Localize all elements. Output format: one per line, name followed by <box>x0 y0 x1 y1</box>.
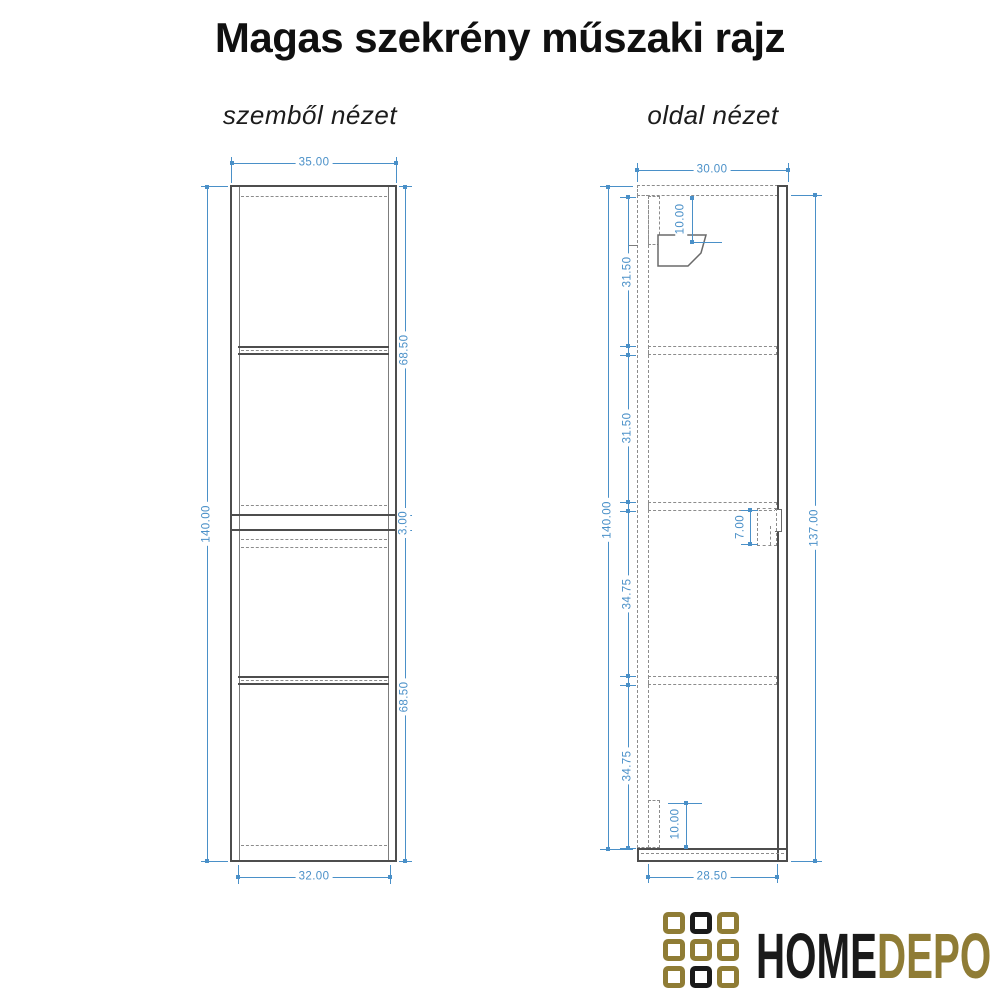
logo-wordmark: HOMEDEPO <box>756 924 991 988</box>
extension-line <box>777 864 778 883</box>
dimension-tick <box>690 240 694 244</box>
extension-line <box>648 864 649 883</box>
logo-grid-cell <box>690 939 712 961</box>
logo-grid-cell <box>663 912 685 934</box>
side-plate-height-dimension: 7.00 <box>735 512 747 542</box>
dimension-tick <box>606 847 610 851</box>
front-total-height-dimension: 140.00 <box>201 502 213 546</box>
extension-line <box>791 861 822 862</box>
logo-text-depo: DEPO <box>877 920 991 992</box>
front-bottom-width-dimension: 32.00 <box>296 871 333 883</box>
front-bottom-panel-dashed-line <box>241 845 387 846</box>
side-section-3-dimension: 34.75 <box>622 576 634 613</box>
logo-text-home: HOME <box>756 920 877 992</box>
side-section-4-dimension: 34.75 <box>622 748 634 785</box>
logo-grid-cell <box>717 939 739 961</box>
dimension-tick <box>205 859 209 863</box>
front-lower-unit-top-line <box>230 529 397 531</box>
side-bottom-depth-dimension: 28.50 <box>694 871 731 883</box>
front-shelf-1-dashed-line <box>241 350 387 351</box>
dimension-tick <box>748 508 752 512</box>
front-mid-dashed-line-2 <box>241 539 387 540</box>
front-upper-section-dimension: 68.50 <box>399 332 411 369</box>
dimension-tick <box>626 195 630 199</box>
dimension-tick <box>606 185 610 189</box>
dimension-tick <box>205 185 209 189</box>
dimension-tick <box>626 683 630 687</box>
side-top-panel <box>637 185 778 196</box>
logo-grid-icon <box>663 912 739 988</box>
dimension-tick <box>786 168 790 172</box>
side-hinge-plate <box>757 508 777 546</box>
dimension-tick <box>626 353 630 357</box>
dimension-tick <box>403 185 407 189</box>
front-top-width-dimension: 35.00 <box>296 157 333 169</box>
side-bottom-rail <box>648 800 660 848</box>
front-mid-dashed-line-3 <box>241 547 387 548</box>
page-title: Magas szekrény műszaki rajz <box>0 14 1000 62</box>
dimension-tick <box>230 161 234 165</box>
logo-grid-cell <box>717 912 739 934</box>
leader-line <box>692 242 722 243</box>
dimension-tick <box>394 161 398 165</box>
technical-drawing-sheet: Magas szekrény műszaki rajz szemből néze… <box>0 0 1000 1000</box>
dimension-line <box>692 198 693 242</box>
dimension-tick <box>813 193 817 197</box>
front-top-panel-dashed-line <box>241 196 387 197</box>
front-cabinet-outline <box>230 185 397 862</box>
side-right-height-dimension: 137.00 <box>809 506 821 550</box>
side-total-height-dimension: 140.00 <box>602 498 614 542</box>
front-gap-dimension: 3.00 <box>398 508 410 538</box>
front-view-label: szemből nézet <box>223 100 397 131</box>
dimension-line <box>750 510 751 545</box>
front-shelf-2-dashed-line <box>241 680 387 681</box>
side-bracket-offset-dimension: 10.00 <box>675 201 687 238</box>
logo-grid-cell <box>717 966 739 988</box>
front-right-wall-inner-line <box>388 187 389 860</box>
logo-grid-cell <box>663 966 685 988</box>
dimension-tick <box>236 875 240 879</box>
dimension-tick <box>635 168 639 172</box>
dimension-tick <box>626 344 630 348</box>
side-shelf-2 <box>648 676 777 685</box>
front-upper-unit-bottom-line <box>230 514 397 516</box>
extension-line <box>791 195 822 196</box>
front-left-wall-inner-line <box>239 187 240 860</box>
side-left-wall <box>637 195 649 848</box>
front-lower-section-dimension: 68.50 <box>399 679 411 716</box>
side-view-label: oldal nézet <box>647 100 778 131</box>
side-section-2-dimension: 31.50 <box>622 410 634 447</box>
extension-line <box>637 163 638 182</box>
dimension-tick <box>388 875 392 879</box>
dimension-line <box>686 803 687 848</box>
side-bottom-panel-dashed-line <box>641 853 784 854</box>
dimension-tick <box>626 509 630 513</box>
dimension-tick <box>684 845 688 849</box>
side-hinge-plate-inner-line <box>770 526 771 545</box>
dimension-tick <box>690 196 694 200</box>
dimension-tick <box>775 875 779 879</box>
dimension-tick <box>748 542 752 546</box>
front-mid-dashed-line-1 <box>241 505 387 506</box>
side-rail-height-dimension: 10.00 <box>670 806 682 843</box>
logo-grid-cell <box>690 966 712 988</box>
logo-grid-cell <box>663 939 685 961</box>
side-bracket-left-tick <box>629 245 638 246</box>
side-top-bracket-shape <box>655 232 711 270</box>
dimension-tick <box>626 674 630 678</box>
dimension-tick <box>626 846 630 850</box>
side-top-depth-dimension: 30.00 <box>694 164 731 176</box>
dimension-tick <box>684 801 688 805</box>
dimension-tick <box>646 875 650 879</box>
dimension-tick <box>626 500 630 504</box>
extension-line <box>600 186 633 187</box>
dimension-tick <box>813 859 817 863</box>
dimension-tick <box>403 859 407 863</box>
side-shelf-1 <box>648 346 777 355</box>
side-section-1-dimension: 31.50 <box>622 254 634 291</box>
extension-line <box>788 163 789 182</box>
logo-grid-cell <box>690 912 712 934</box>
side-bottom-panel <box>637 848 788 862</box>
